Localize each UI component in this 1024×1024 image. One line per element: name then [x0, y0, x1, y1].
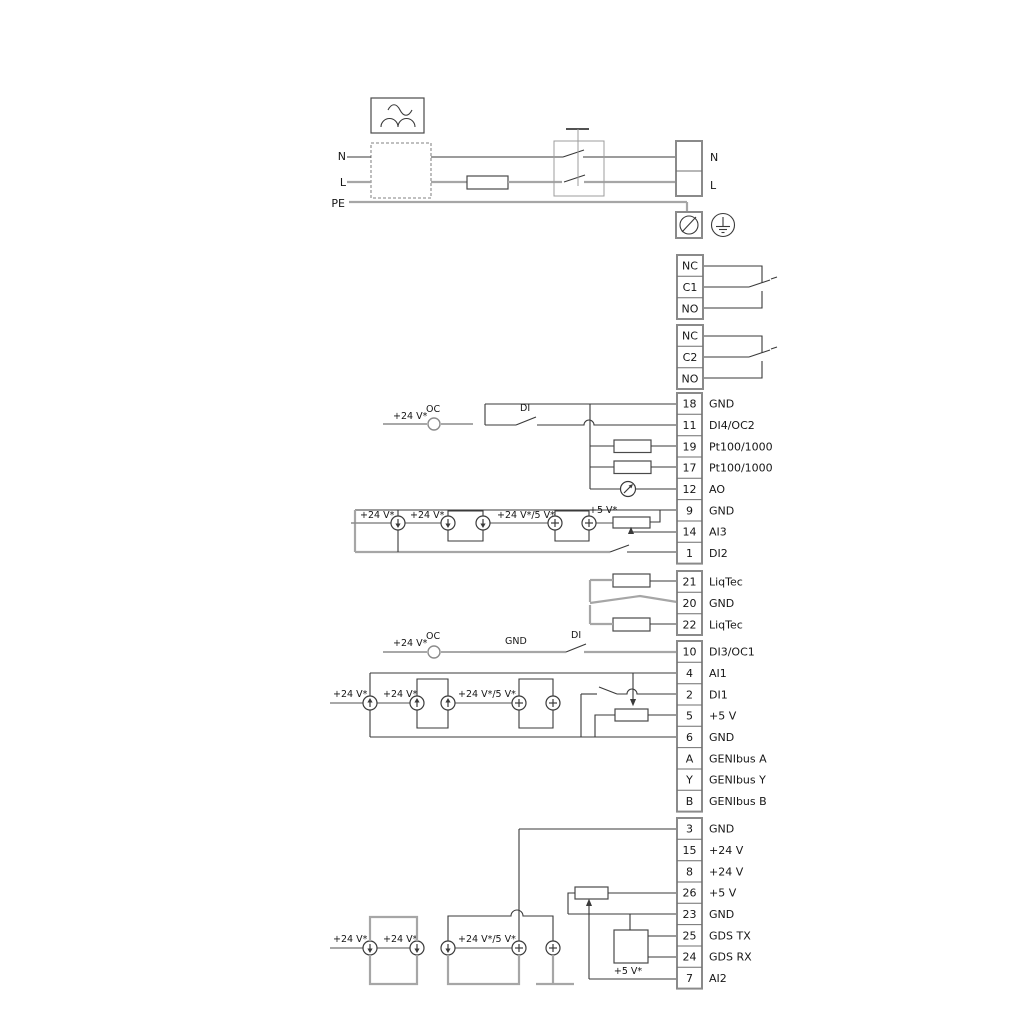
relay1-wiring [703, 266, 777, 308]
current-source-icon [441, 696, 455, 710]
plus24v-5v-label: +24 V*/5 V* [497, 510, 555, 521]
n-right-label: N [710, 151, 718, 164]
oc-circle-icon [428, 646, 440, 658]
terminal-number: 18 [683, 398, 697, 411]
terminal-label: GENIbus B [709, 795, 767, 808]
terminal-number: 15 [683, 844, 697, 857]
section-di3: +24 V* OC GND DI [383, 630, 677, 658]
current-source-icon [391, 516, 405, 530]
wire [595, 715, 615, 737]
section-liqtec [590, 574, 677, 631]
plus5v-label: +5 V* [614, 966, 643, 977]
voltage-source-icon [512, 941, 526, 955]
terminal-label: GENIbus A [709, 752, 767, 765]
plus24v-label: +24 V* [410, 510, 445, 521]
oc-label: OC [426, 404, 440, 415]
switch-lever [599, 687, 617, 694]
switch-lever [516, 417, 536, 425]
relay-terminal-label: C1 [683, 281, 698, 294]
terminal-label: +5 V [709, 887, 737, 900]
terminal-number: 6 [686, 731, 693, 744]
main-switch-box [554, 141, 604, 196]
terminal-label: DI2 [709, 547, 728, 560]
section-ai1: +24 V* +24 V* +24 V*/5 V* [330, 673, 677, 737]
wire-nc [703, 266, 762, 283]
resistor [614, 461, 651, 474]
terminal-label: +5 V [709, 710, 737, 723]
wire-di4-hop [537, 420, 677, 425]
wire [568, 893, 575, 914]
relay-contact-lever [749, 350, 770, 357]
wire-di1-hop [617, 689, 677, 694]
plus24v-label: +24 V* [333, 934, 368, 945]
plus24v-5v-label: +24 V*/5 V* [458, 934, 516, 945]
n-left-label: N [338, 150, 346, 163]
current-source-icon [410, 696, 424, 710]
terminal-label: GND [709, 504, 734, 517]
terminal-label: GDS RX [709, 951, 752, 964]
terminal-label: DI4/OC2 [709, 419, 755, 432]
terminal-label: +24 V [709, 865, 744, 878]
bracket [370, 955, 417, 984]
dashed-component-box [371, 143, 431, 198]
bracket [555, 511, 589, 516]
section-gds: +5 V* [519, 829, 677, 979]
plus24v-label: +24 V* [393, 638, 428, 649]
terminal-number: 9 [686, 504, 693, 517]
current-source-icon [441, 941, 455, 955]
wiring-diagram: N L PE N L [0, 0, 1024, 1024]
relay-contact-tip [771, 277, 777, 279]
switch-lever [563, 150, 584, 157]
ac-symbol-box [371, 98, 424, 133]
wire-no [703, 361, 762, 378]
terminal-number: 19 [683, 440, 697, 453]
terminal-number: A [686, 752, 694, 765]
terminal-label: GND [709, 597, 734, 610]
terminal-label: LiqTec [709, 618, 743, 631]
plus24v-label: +24 V* [360, 510, 395, 521]
terminal-number: 10 [683, 646, 697, 659]
bracket [448, 955, 519, 984]
terminal-label: Pt100/1000 [709, 462, 773, 475]
potentiometer [613, 517, 650, 528]
current-source-icon [410, 941, 424, 955]
terminal-number: 7 [686, 972, 693, 985]
gds-module-box [614, 930, 648, 963]
voltage-source-icon [546, 696, 560, 710]
terminal-number: 23 [683, 908, 697, 921]
terminal-number: 25 [683, 929, 697, 942]
terminal-number: 21 [683, 576, 697, 589]
bracket [555, 530, 589, 541]
plus5v-label: +5 V* [589, 505, 618, 516]
voltage-source-icon [582, 516, 596, 530]
terminal-label: DI3/OC1 [709, 646, 755, 659]
resistor [613, 574, 650, 587]
current-source-icon [363, 696, 377, 710]
terminal-label: GDS TX [709, 929, 751, 942]
gnd-label: GND [505, 636, 527, 647]
terminal-number: 4 [686, 667, 693, 680]
switch-lever [610, 545, 629, 552]
voltage-source-icon [512, 696, 526, 710]
voltage-source-icon [548, 516, 562, 530]
section-ai2-sources: +24 V* +24 V* +24 V*/5 V* [330, 910, 574, 984]
wire-nc [703, 336, 762, 353]
bracket [519, 679, 553, 696]
switch-lever [564, 175, 585, 182]
wiring-diagram-page: N L PE N L [0, 0, 1024, 1024]
bracket [448, 511, 483, 516]
terminal-number: 11 [683, 419, 697, 432]
fuse [467, 176, 508, 189]
terminal-number: 5 [686, 710, 693, 723]
resistor [613, 618, 650, 631]
l-left-label: L [340, 176, 347, 189]
terminal-label: +24 V [709, 844, 744, 857]
switch-lever [566, 644, 586, 652]
relay-terminal-label: NC [682, 330, 698, 343]
terminal-label: DI1 [709, 688, 728, 701]
terminal-label: AO [709, 483, 725, 496]
terminal-number: 1 [686, 547, 693, 560]
oc-label: OC [426, 631, 440, 642]
terminal-number: Y [685, 774, 693, 787]
analog-output-meter-icon [621, 482, 636, 497]
terminal-number: 26 [683, 887, 697, 900]
mains-terminal-block [676, 141, 702, 196]
terminal-label: GENIbus Y [709, 774, 766, 787]
wire-no [703, 291, 762, 308]
oc-circle-icon [428, 418, 440, 430]
terminal-number: 3 [686, 823, 693, 836]
terminal-number: B [686, 795, 694, 808]
current-source-icon [363, 941, 377, 955]
terminal-label: AI2 [709, 972, 727, 985]
l-right-label: L [710, 179, 717, 192]
bracket [417, 679, 448, 696]
current-source-icon [441, 516, 455, 530]
terminal-label: Pt100/1000 [709, 440, 773, 453]
bracket [448, 530, 483, 541]
terminal-number: 24 [683, 951, 697, 964]
terminal-number: 12 [683, 483, 697, 496]
current-source-icon [476, 516, 490, 530]
bracket [536, 955, 574, 984]
terminal-label: GND [709, 398, 734, 411]
terminal-number: 14 [683, 526, 697, 539]
terminal-label: GND [709, 823, 734, 836]
terminal-label: AI1 [709, 667, 727, 680]
mains-section: N L PE N L [331, 98, 734, 238]
terminal-label: GND [709, 731, 734, 744]
potentiometer [575, 887, 608, 899]
plus24v-label: +24 V* [393, 411, 428, 422]
pe-left-label: PE [331, 197, 345, 210]
terminal-number: 22 [683, 618, 697, 631]
terminal-number: 20 [683, 597, 697, 610]
resistor [614, 440, 651, 453]
potentiometer [615, 709, 648, 721]
terminal-strips: 18GND11DI4/OC219Pt100/100017Pt100/100012… [677, 255, 773, 989]
voltage-source-icon [546, 941, 560, 955]
bracket [417, 710, 448, 728]
terminal-label: GND [709, 908, 734, 921]
relay-terminal-label: NO [682, 372, 699, 385]
wire-gnd20 [590, 596, 677, 603]
section-di4: +24 V* OC DI [383, 403, 677, 497]
relay-terminal-label: NC [682, 260, 698, 273]
terminal-number: 8 [686, 865, 693, 878]
relay-contact-tip [771, 347, 777, 349]
terminal-label: AI3 [709, 526, 727, 539]
wire [650, 510, 660, 522]
wire-wiper [631, 529, 677, 532]
relay-terminal-label: NO [682, 302, 699, 315]
plus24v-label: +24 V* [333, 689, 368, 700]
relay2-wiring [703, 336, 777, 378]
relay-terminal-label: C2 [683, 351, 698, 364]
di-label: DI [571, 630, 581, 641]
bracket [519, 710, 553, 728]
di-label: DI [520, 403, 530, 414]
section-ai3: +24 V* +24 V* +24 V*/5 V* +5 V* [351, 505, 677, 552]
relay-contact-lever [749, 280, 770, 287]
plus24v-5v-label: +24 V*/5 V* [458, 689, 516, 700]
terminal-label: LiqTec [709, 576, 743, 589]
terminal-number: 17 [683, 462, 697, 475]
terminal-number: 2 [686, 688, 693, 701]
